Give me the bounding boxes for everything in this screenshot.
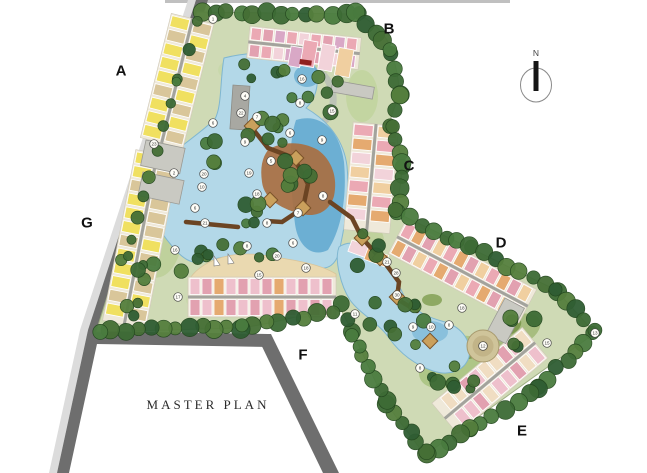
building-unit (352, 138, 372, 151)
plan-marker-6: 6 (289, 239, 298, 248)
tree (353, 340, 366, 353)
marker-number: 23 (151, 142, 157, 147)
section-label-E: E (517, 423, 527, 440)
plan-marker-9: 9 (409, 323, 418, 332)
building-unit (226, 279, 236, 295)
building-unit (250, 279, 260, 295)
building-unit (375, 154, 395, 167)
access-lane (188, 296, 336, 299)
plan-marker-13: 13 (591, 329, 600, 338)
tree (430, 375, 446, 391)
plan-marker-8: 8 (296, 99, 305, 108)
marker-number: 5 (270, 159, 273, 164)
building-unit (261, 46, 272, 59)
plan-marker-1: 1 (209, 15, 218, 24)
tree (127, 235, 136, 244)
marker-number: 15 (256, 273, 262, 278)
tree (386, 120, 400, 134)
building-unit (251, 28, 262, 41)
plan-marker-30: 30 (393, 291, 402, 300)
plan-marker-10: 10 (427, 323, 436, 332)
tree (278, 138, 288, 148)
marker-number: 10 (428, 325, 434, 330)
tree (468, 375, 480, 387)
marker-number: 6 (292, 241, 295, 246)
building-unit (190, 300, 200, 316)
tree (388, 327, 402, 341)
tree (239, 59, 250, 70)
marker-number: 8 (266, 221, 269, 226)
tree (327, 306, 340, 319)
tree (158, 121, 169, 132)
tree (388, 103, 402, 117)
plan-marker-9: 9 (241, 138, 250, 147)
plan-marker-11: 11 (351, 310, 360, 319)
marker-number: 8 (419, 366, 422, 371)
building-unit (214, 279, 224, 295)
building-unit (351, 152, 371, 165)
marker-number: 16 (172, 248, 178, 253)
tree (235, 319, 248, 332)
building-unit (226, 300, 236, 316)
plan-marker-6: 6 (191, 204, 200, 213)
compass-layer: N (521, 48, 552, 102)
marker-number: 9 (321, 138, 324, 143)
tree (321, 87, 333, 99)
tree (217, 239, 229, 251)
marker-number: 7 (256, 115, 259, 120)
tree (286, 310, 301, 325)
marker-number: 8 (448, 323, 451, 328)
tree (118, 323, 135, 340)
plan-marker-8: 8 (416, 364, 425, 373)
plan-marker-15: 15 (328, 107, 337, 116)
tree (265, 116, 281, 132)
building-unit (374, 168, 394, 181)
section-label-C: C (404, 158, 415, 175)
tree (183, 43, 195, 55)
tree (144, 320, 159, 335)
site-plan-drawing: 1164815227669239522019101886721868162015… (0, 0, 647, 473)
tree (577, 313, 591, 327)
tree (133, 298, 143, 308)
marker-number: 6 (212, 121, 215, 126)
lawn-patch (422, 294, 442, 306)
tree (278, 64, 290, 76)
building-unit (370, 210, 390, 223)
tree (138, 191, 149, 202)
tree (503, 310, 518, 325)
tree (332, 76, 343, 87)
marker-number: 21 (384, 260, 390, 265)
marker-number: 6 (194, 206, 197, 211)
tree (128, 310, 139, 321)
marker-number: 11 (353, 312, 358, 317)
tree (358, 229, 368, 239)
plan-marker-16: 16 (171, 246, 180, 255)
marker-number: 22 (238, 111, 244, 116)
marker-number: 18 (303, 266, 309, 271)
tree (411, 340, 421, 350)
tree (312, 70, 325, 83)
building-unit (190, 279, 200, 295)
plan-marker-15: 15 (255, 271, 264, 280)
plan-marker-6: 6 (286, 129, 295, 138)
tree (345, 329, 359, 343)
building-unit (349, 180, 369, 193)
tree (372, 239, 386, 253)
plan-marker-15: 15 (543, 339, 552, 348)
tree (131, 211, 144, 224)
building-unit (262, 300, 272, 316)
tree (286, 7, 299, 20)
section-label-A: A (116, 63, 127, 80)
section-label-G: G (81, 215, 93, 232)
tree (260, 315, 274, 329)
plan-marker-21: 21 (201, 219, 210, 228)
building-unit (238, 279, 248, 295)
building-unit (322, 279, 332, 295)
tree (425, 223, 442, 240)
tree (166, 99, 176, 109)
building-unit (310, 279, 320, 295)
tree (510, 263, 527, 280)
tree (350, 258, 364, 272)
marker-number: 4 (244, 94, 247, 99)
tree (308, 6, 324, 22)
tree (391, 86, 409, 104)
building-unit (263, 29, 274, 42)
tree (283, 168, 299, 184)
plan-title: MASTER PLAN (147, 397, 270, 413)
tree (207, 134, 222, 149)
tree (369, 296, 382, 309)
tree (131, 263, 146, 278)
tree (181, 318, 199, 336)
plan-marker-6: 6 (209, 119, 218, 128)
marker-number: 20 (274, 254, 280, 259)
plan-marker-8: 8 (243, 242, 252, 251)
marker-number: 15 (329, 109, 335, 114)
tree (146, 257, 161, 272)
building-unit (250, 300, 260, 316)
tree (297, 164, 312, 179)
marker-number: 17 (175, 295, 181, 300)
marker-number: 7 (297, 211, 300, 216)
marker-number: 10 (199, 185, 205, 190)
section-label-F: F (298, 347, 307, 364)
plan-marker-10: 10 (198, 183, 207, 192)
master-plan-canvas: 1164815227669239522019101886721868162015… (0, 0, 647, 473)
building-unit (373, 182, 393, 195)
plan-marker-12: 12 (479, 342, 488, 351)
tree (262, 133, 274, 145)
marker-number: 18 (254, 192, 260, 197)
building-unit (202, 300, 212, 316)
plan-marker-28: 28 (392, 269, 401, 278)
building-unit (354, 124, 374, 137)
marker-number: 8 (299, 101, 302, 106)
tree (388, 133, 402, 147)
marker-number: 8 (246, 244, 249, 249)
marker-number: 18 (459, 306, 465, 311)
building-unit (286, 279, 296, 295)
building-unit (238, 300, 248, 316)
tree (123, 251, 132, 260)
building-unit (214, 300, 224, 316)
plan-marker-16: 16 (298, 75, 307, 84)
plan-marker-22: 22 (237, 109, 246, 118)
tree (526, 311, 542, 327)
plan-marker-21: 21 (383, 258, 392, 267)
tree (174, 264, 188, 278)
plan-marker-5: 5 (267, 157, 276, 166)
section-label-D: D (496, 235, 507, 252)
building-unit (249, 45, 260, 58)
tree (277, 154, 292, 169)
marker-number: 28 (393, 271, 399, 276)
marker-number: 9 (244, 140, 247, 145)
building-unit (274, 300, 284, 316)
plan-marker-23: 23 (150, 140, 159, 149)
tree (207, 155, 221, 169)
tree (508, 338, 520, 350)
tree (203, 250, 213, 260)
plan-marker-19: 19 (245, 169, 254, 178)
building-unit (298, 279, 308, 295)
tree (398, 297, 413, 312)
tree (192, 16, 202, 26)
tree (447, 380, 460, 393)
plan-marker-17: 17 (174, 293, 183, 302)
building-unit (273, 47, 284, 60)
tree (143, 171, 156, 184)
plan-marker-9: 9 (318, 136, 327, 145)
plan-marker-20: 20 (200, 170, 209, 179)
plan-marker-18: 18 (253, 190, 262, 199)
section-label-B: B (384, 21, 395, 38)
tree (93, 324, 108, 339)
plan-marker-7: 7 (294, 209, 303, 218)
plan-marker-20: 20 (273, 252, 282, 261)
plan-marker-18: 18 (458, 304, 467, 313)
tree (363, 318, 377, 332)
tree (383, 43, 397, 57)
north-boundary-strip (165, 0, 510, 3)
building-unit (274, 279, 284, 295)
tree (218, 4, 233, 19)
building-unit (371, 196, 391, 209)
tree (247, 74, 256, 83)
tree (254, 253, 264, 263)
building-unit (350, 166, 370, 179)
building-unit (347, 194, 367, 207)
marker-number: 2 (173, 171, 176, 176)
plan-marker-2: 2 (170, 169, 179, 178)
tree (172, 77, 181, 86)
building-unit (274, 30, 285, 43)
plan-marker-18: 18 (302, 264, 311, 273)
marker-number: 1 (212, 17, 215, 22)
marker-number: 15 (544, 341, 550, 346)
marker-number: 21 (202, 221, 208, 226)
marker-number: 8 (322, 194, 325, 199)
marker-number: 16 (299, 77, 305, 82)
tree (388, 203, 403, 218)
plan-marker-4: 4 (241, 92, 250, 101)
plan-marker-8: 8 (319, 192, 328, 201)
building-unit (262, 279, 272, 295)
tree (192, 253, 203, 264)
marker-number: 30 (394, 293, 400, 298)
tree (249, 217, 260, 228)
plan-marker-7: 7 (253, 113, 262, 122)
tree (287, 93, 297, 103)
tree (449, 361, 460, 372)
compass-icon: N (521, 48, 552, 102)
compass-north-label: N (533, 48, 539, 58)
building-unit (286, 31, 297, 44)
plan-marker-8: 8 (445, 321, 454, 330)
plan-marker-8: 8 (263, 219, 272, 228)
marker-number: 6 (289, 131, 292, 136)
marker-number: 19 (246, 171, 252, 176)
marker-number: 13 (592, 331, 598, 336)
marker-number: 12 (480, 344, 486, 349)
marker-number: 9 (412, 325, 415, 330)
tree (549, 283, 562, 296)
building-unit (202, 279, 212, 295)
marker-number: 20 (201, 172, 207, 177)
